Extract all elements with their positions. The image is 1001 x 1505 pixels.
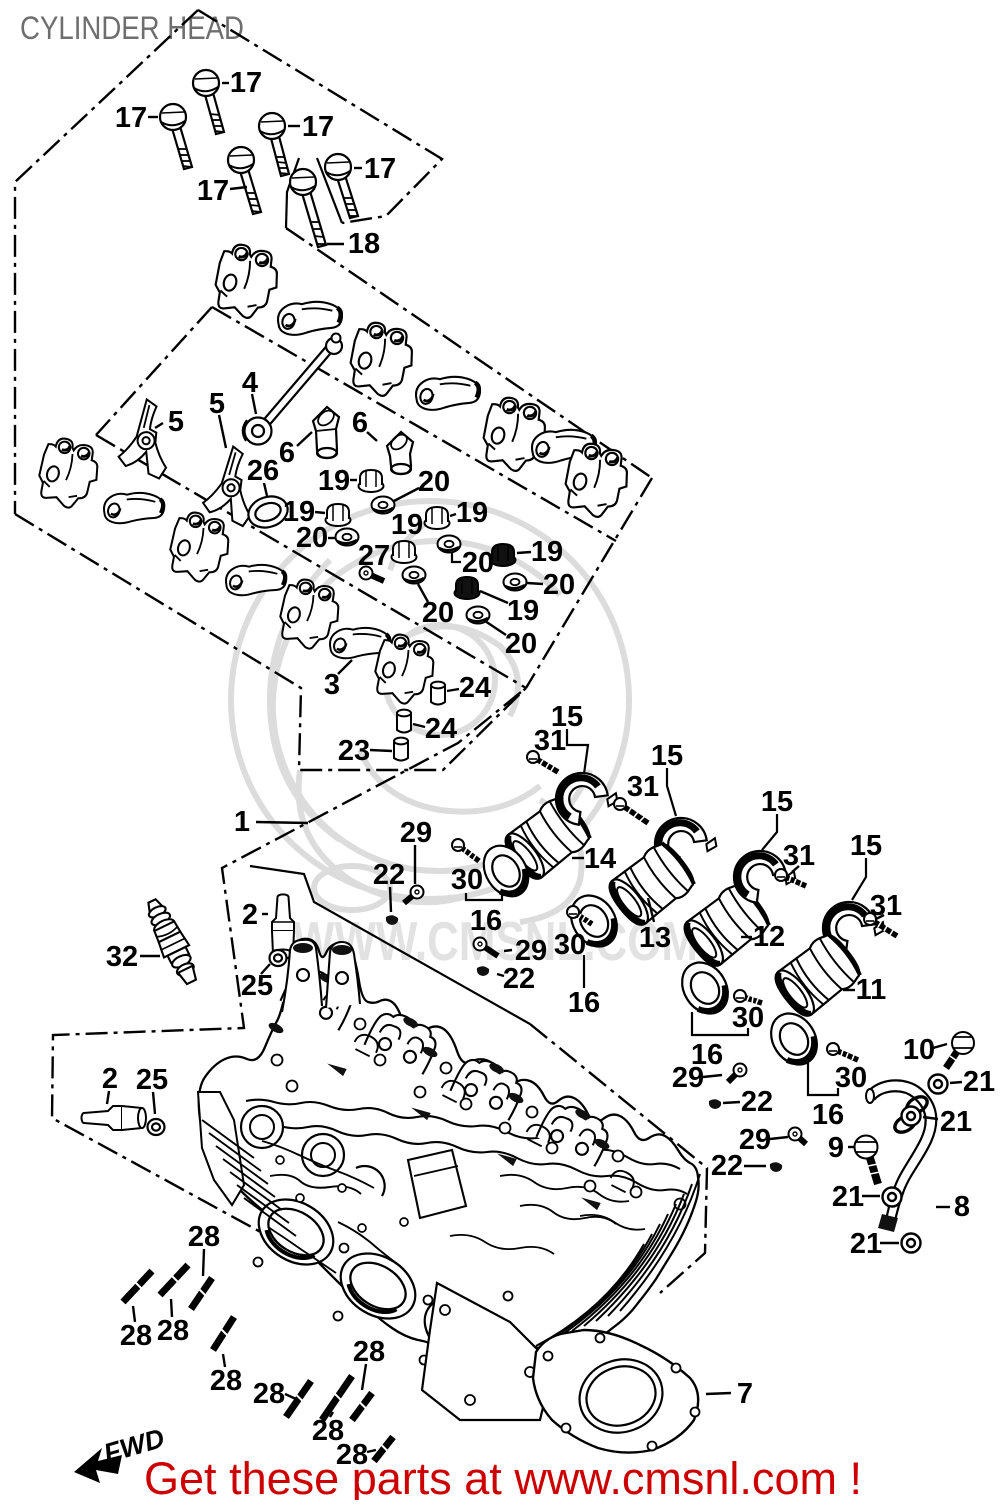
svg-text:16: 16 bbox=[812, 1099, 844, 1131]
svg-text:10: 10 bbox=[903, 1034, 935, 1066]
svg-text:31: 31 bbox=[534, 725, 566, 757]
svg-text:15: 15 bbox=[850, 830, 882, 862]
svg-text:8: 8 bbox=[954, 1191, 970, 1223]
svg-text:29: 29 bbox=[672, 1062, 704, 1094]
svg-text:19: 19 bbox=[531, 536, 563, 568]
svg-text:28: 28 bbox=[120, 1320, 152, 1352]
svg-text:CYLINDER HEAD: CYLINDER HEAD bbox=[20, 10, 244, 46]
svg-text:24: 24 bbox=[459, 672, 491, 704]
svg-text:30: 30 bbox=[451, 864, 483, 896]
svg-text:2: 2 bbox=[242, 899, 258, 931]
svg-text:14: 14 bbox=[584, 843, 616, 875]
svg-text:16: 16 bbox=[470, 905, 502, 937]
svg-text:24: 24 bbox=[425, 713, 457, 745]
svg-text:20: 20 bbox=[543, 569, 575, 601]
svg-text:6: 6 bbox=[279, 437, 295, 469]
svg-text:29: 29 bbox=[739, 1124, 771, 1156]
svg-text:5: 5 bbox=[209, 388, 225, 420]
svg-text:23: 23 bbox=[338, 735, 370, 767]
svg-text:25: 25 bbox=[241, 970, 273, 1002]
svg-text:19: 19 bbox=[507, 595, 539, 627]
svg-text:22: 22 bbox=[711, 1150, 743, 1182]
svg-text:11: 11 bbox=[856, 974, 887, 1006]
svg-text:6: 6 bbox=[352, 407, 368, 439]
svg-text:22: 22 bbox=[373, 859, 405, 891]
svg-text:27: 27 bbox=[358, 540, 390, 572]
svg-text:22: 22 bbox=[741, 1086, 773, 1118]
svg-text:22: 22 bbox=[503, 963, 535, 995]
svg-text:5: 5 bbox=[168, 406, 184, 438]
svg-text:20: 20 bbox=[505, 628, 537, 660]
svg-text:4: 4 bbox=[242, 367, 258, 399]
svg-text:17: 17 bbox=[302, 111, 334, 143]
svg-text:28: 28 bbox=[188, 1221, 220, 1253]
svg-text:29: 29 bbox=[400, 817, 432, 849]
svg-text:19: 19 bbox=[391, 509, 423, 541]
svg-text:28: 28 bbox=[210, 1365, 242, 1397]
svg-text:3: 3 bbox=[324, 669, 340, 701]
svg-text:2: 2 bbox=[102, 1063, 118, 1095]
svg-text:30: 30 bbox=[554, 929, 586, 961]
svg-text:17: 17 bbox=[115, 102, 147, 134]
svg-text:15: 15 bbox=[651, 740, 683, 772]
svg-text:9: 9 bbox=[828, 1132, 844, 1164]
svg-text:17: 17 bbox=[364, 153, 396, 185]
svg-text:19: 19 bbox=[456, 497, 488, 529]
svg-text:26: 26 bbox=[247, 455, 279, 487]
svg-text:15: 15 bbox=[761, 786, 793, 818]
svg-text:28: 28 bbox=[253, 1378, 285, 1410]
svg-text:28: 28 bbox=[353, 1336, 385, 1368]
svg-text:20: 20 bbox=[296, 522, 328, 554]
svg-text:12: 12 bbox=[753, 921, 785, 953]
svg-text:13: 13 bbox=[639, 922, 671, 954]
svg-text:17: 17 bbox=[197, 175, 229, 207]
svg-text:16: 16 bbox=[568, 987, 600, 1019]
svg-text:21: 21 bbox=[850, 1228, 882, 1260]
svg-text:17: 17 bbox=[230, 67, 262, 99]
svg-text:1: 1 bbox=[234, 806, 250, 838]
svg-text:20: 20 bbox=[418, 466, 450, 498]
svg-text:25: 25 bbox=[136, 1064, 168, 1096]
svg-text:20: 20 bbox=[462, 547, 494, 579]
svg-text:31: 31 bbox=[627, 771, 659, 803]
svg-text:32: 32 bbox=[106, 941, 138, 973]
svg-text:31: 31 bbox=[870, 890, 902, 922]
svg-text:7: 7 bbox=[737, 1378, 753, 1410]
svg-text:18: 18 bbox=[348, 228, 380, 260]
svg-text:21: 21 bbox=[832, 1181, 864, 1213]
svg-text:Get these parts at www.cmsnl.c: Get these parts at www.cmsnl.com ! bbox=[144, 1453, 862, 1500]
svg-text:28: 28 bbox=[157, 1315, 189, 1347]
svg-text:19: 19 bbox=[318, 465, 350, 497]
svg-text:21: 21 bbox=[940, 1106, 972, 1138]
svg-text:21: 21 bbox=[963, 1066, 995, 1098]
svg-text:30: 30 bbox=[835, 1062, 867, 1094]
